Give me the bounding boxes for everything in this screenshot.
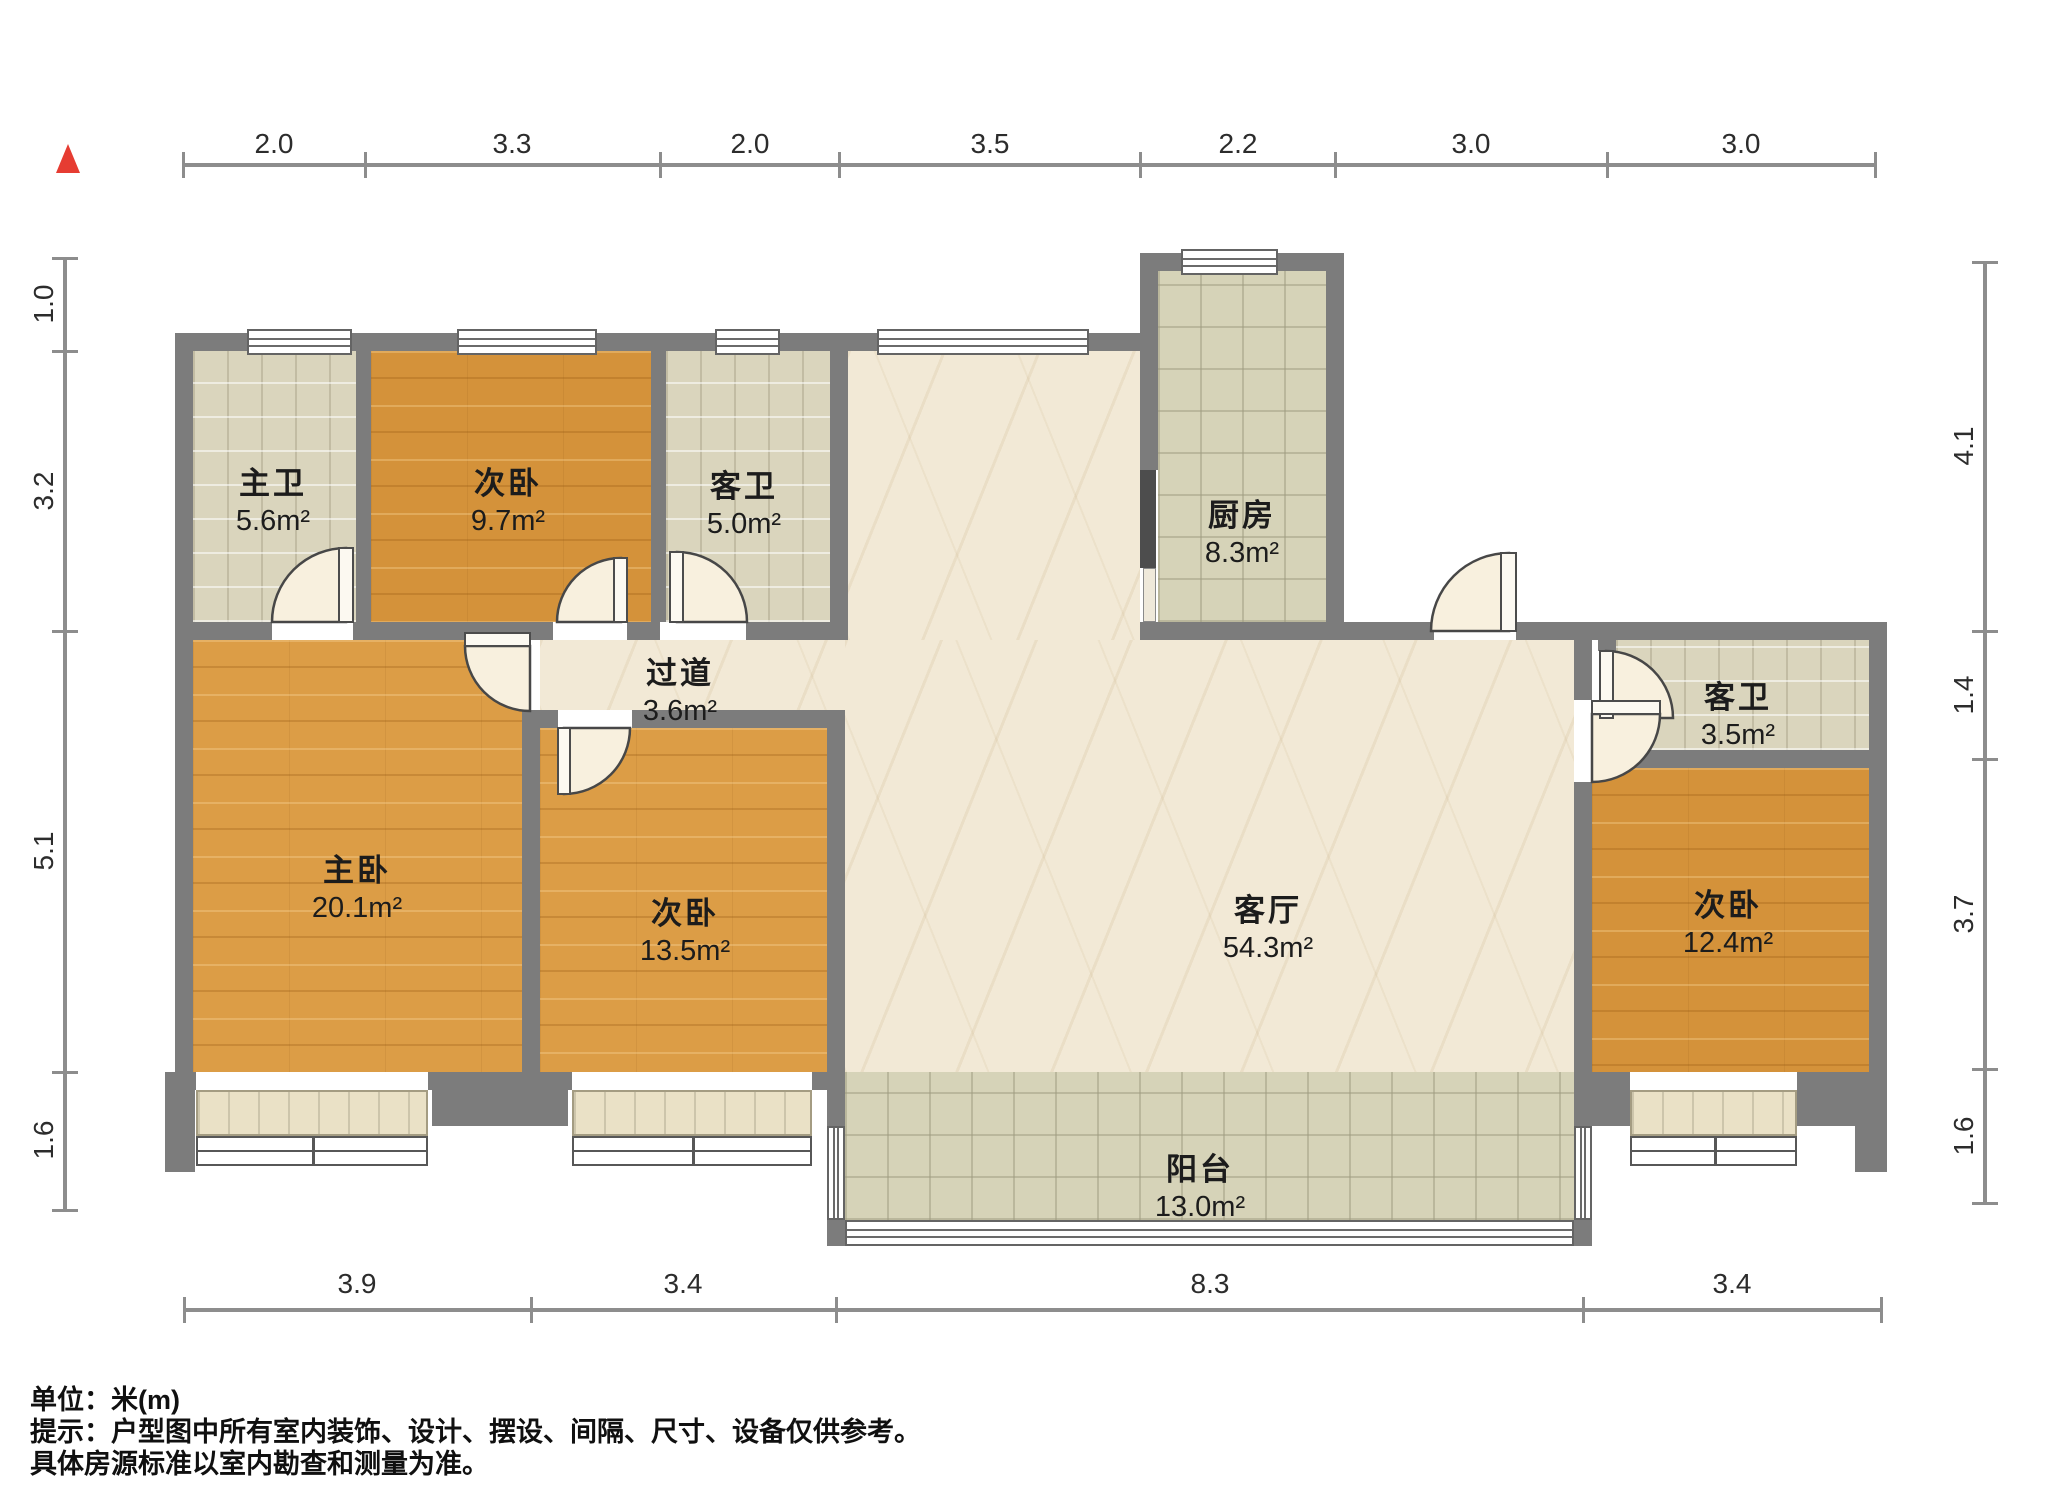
wall-master-right xyxy=(522,710,540,1081)
window-guest-bath-top xyxy=(715,329,780,355)
room-area: 12.4m² xyxy=(1683,927,1773,960)
room-label-master-bath: 主卫 5.6m² xyxy=(236,458,310,538)
footer-note-line1: 提示：户型图中所有室内装饰、设计、摆设、间隔、尺寸、设备仅供参考。 xyxy=(30,1416,921,1448)
dim-tick xyxy=(52,630,78,633)
dim-line-top xyxy=(183,163,1875,167)
wall-bathright-bottom xyxy=(1598,750,1887,768)
wall-left-outer xyxy=(175,333,193,1090)
wall-balcony-right-top xyxy=(1574,1090,1592,1128)
bay-sill-bedroom-mid xyxy=(572,1090,812,1136)
room-label-master-bedroom: 主卧 20.1m² xyxy=(312,845,402,925)
room-label-guest-bath-top: 客卫 5.0m² xyxy=(707,461,781,541)
room-label-bedroom-right: 次卧 12.4m² xyxy=(1683,880,1773,960)
dim-left-4: 1.6 xyxy=(28,1121,60,1160)
dim-line-bottom xyxy=(184,1308,1882,1312)
window-living-north xyxy=(877,329,1089,355)
wall-entry-right xyxy=(1516,622,1887,640)
dim-line-right xyxy=(1983,262,1987,1204)
dim-bottom-1: 3.9 xyxy=(338,1268,377,1300)
room-name: 厨房 xyxy=(1205,490,1279,535)
dim-line-left xyxy=(63,258,67,1211)
wall-master-right-stub xyxy=(522,622,540,640)
window-balcony-right xyxy=(1574,1126,1592,1220)
bay-window-master-bedroom xyxy=(196,1136,428,1166)
room-area: 9.7m² xyxy=(471,505,545,538)
room-name: 次卧 xyxy=(1683,880,1773,925)
dim-tick xyxy=(1334,152,1337,178)
wall-bedmid-right xyxy=(827,710,845,1090)
bay-window-bedroom-mid xyxy=(572,1136,812,1166)
dim-bottom-4: 3.4 xyxy=(1713,1268,1752,1300)
dim-left-3: 5.1 xyxy=(28,832,60,871)
room-area: 3.5m² xyxy=(1701,719,1775,752)
room-floor-living-north xyxy=(848,351,1140,640)
dim-top-6: 3.0 xyxy=(1452,128,1491,160)
wall-entry-left xyxy=(1326,622,1434,640)
dim-right-4: 1.6 xyxy=(1948,1117,1980,1156)
room-area: 13.0m² xyxy=(1155,1191,1245,1224)
dim-tick xyxy=(183,1297,186,1323)
wall-balcony-right-corner xyxy=(1574,1218,1592,1246)
window-kitchen xyxy=(1181,249,1278,275)
dim-right-1: 4.1 xyxy=(1948,427,1980,466)
room-name: 主卧 xyxy=(312,845,402,890)
wall-mid-4 xyxy=(746,622,848,640)
room-name: 次卧 xyxy=(640,888,730,933)
dim-top-1: 2.0 xyxy=(255,128,294,160)
kitchen-sliding-door xyxy=(1140,470,1156,568)
wall-right-flare xyxy=(1855,1072,1887,1172)
room-label-bedroom-mid: 次卧 13.5m² xyxy=(640,888,730,968)
room-label-corridor: 过道 3.6m² xyxy=(643,648,717,728)
dim-tick xyxy=(1582,1297,1585,1323)
room-name: 过道 xyxy=(643,648,717,693)
window-bedroom-top xyxy=(457,329,597,355)
dim-right-2: 1.4 xyxy=(1948,676,1980,715)
wall-kitchen-bottom xyxy=(1140,622,1344,640)
dim-tick xyxy=(838,152,841,178)
door-arc-entry xyxy=(1431,553,1509,631)
bay-window-bedroom-right xyxy=(1630,1136,1797,1166)
dim-tick xyxy=(1972,1068,1998,1071)
dim-tick xyxy=(1606,152,1609,178)
dim-tick xyxy=(52,350,78,353)
wall-bottom-stub-c xyxy=(1797,1090,1855,1126)
wall-bottom-3 xyxy=(812,1072,827,1090)
window-master-bath xyxy=(247,329,352,355)
dim-tick xyxy=(364,152,367,178)
room-label-balcony: 阳台 13.0m² xyxy=(1155,1144,1245,1224)
room-area: 3.6m² xyxy=(643,695,717,728)
bay-sill-bedroom-right xyxy=(1630,1090,1797,1136)
floor-plan-page: 主卫 5.6m² 次卧 9.7m² 客卫 5.0m² 厨房 8.3m² 过道 3… xyxy=(0,0,2048,1488)
wall-bottom-stub-a xyxy=(432,1090,568,1126)
dim-tick xyxy=(835,1297,838,1323)
north-arrow-icon xyxy=(56,144,80,173)
wall-bedright-left-bottom xyxy=(1574,782,1592,1090)
room-area: 5.6m² xyxy=(236,505,310,538)
dim-tick xyxy=(52,1209,78,1212)
dim-tick xyxy=(1972,630,1998,633)
wall-balcony-left-top xyxy=(827,1090,845,1128)
wall-bottom-right-1 xyxy=(1574,1072,1630,1090)
room-floor-living-main xyxy=(845,640,1574,1072)
wall-right-outer xyxy=(1869,622,1887,1090)
room-area: 54.3m² xyxy=(1223,932,1313,965)
wall-bed-bath-divider xyxy=(651,351,666,622)
door-leaf-entry xyxy=(1501,553,1516,631)
wall-bath-bed-divider xyxy=(356,351,371,622)
dim-tick xyxy=(1972,758,1998,761)
room-name: 主卫 xyxy=(236,458,310,503)
wall-mid-1 xyxy=(175,622,272,640)
room-name: 阳台 xyxy=(1155,1144,1245,1189)
dim-left-1: 1.0 xyxy=(28,285,60,324)
footer-note-line2: 具体房源标准以室内勘查和测量为准。 xyxy=(30,1448,489,1480)
wall-balcony-left-corner xyxy=(827,1218,845,1246)
dim-tick xyxy=(1972,261,1998,264)
dim-tick xyxy=(530,1297,533,1323)
dim-tick xyxy=(182,152,185,178)
wall-mid-3 xyxy=(627,622,660,640)
dim-right-3: 3.7 xyxy=(1948,895,1980,934)
dim-left-2: 3.2 xyxy=(28,472,60,511)
dim-tick xyxy=(52,257,78,260)
room-name: 客卫 xyxy=(707,461,781,506)
room-label-guest-bath-right: 客卫 3.5m² xyxy=(1701,672,1775,752)
room-label-living-room: 客厅 54.3m² xyxy=(1223,885,1313,965)
room-name: 次卧 xyxy=(471,458,545,503)
wall-bottom-2 xyxy=(428,1072,572,1090)
bay-sill-master-bedroom xyxy=(196,1090,428,1136)
wall-bath-living-divider xyxy=(830,351,848,622)
door-leaf-guest-bath-right xyxy=(1600,651,1613,718)
dim-tick xyxy=(1880,1297,1883,1323)
dim-bottom-2: 3.4 xyxy=(664,1268,703,1300)
room-name: 客厅 xyxy=(1223,885,1313,930)
window-balcony-left xyxy=(827,1126,845,1220)
room-label-bedroom-top: 次卧 9.7m² xyxy=(471,458,545,538)
kitchen-sliding-panel xyxy=(1143,568,1156,622)
dim-top-2: 3.3 xyxy=(493,128,532,160)
dim-top-5: 2.2 xyxy=(1219,128,1258,160)
footer-unit-label: 单位：米(m) xyxy=(30,1384,180,1416)
room-label-kitchen: 厨房 8.3m² xyxy=(1205,490,1279,570)
dim-tick xyxy=(1139,152,1142,178)
dim-top-3: 2.0 xyxy=(731,128,770,160)
room-area: 5.0m² xyxy=(707,508,781,541)
room-name: 客卫 xyxy=(1701,672,1775,717)
dim-tick xyxy=(52,1071,78,1074)
dim-tick xyxy=(1874,152,1877,178)
dim-top-7: 3.0 xyxy=(1722,128,1761,160)
dim-tick xyxy=(659,152,662,178)
wall-kitchen-right xyxy=(1326,253,1344,640)
room-area: 8.3m² xyxy=(1205,537,1279,570)
wall-bottom-stub-b xyxy=(1592,1090,1630,1126)
dim-bottom-3: 8.3 xyxy=(1191,1268,1230,1300)
room-area: 20.1m² xyxy=(312,892,402,925)
dim-top-4: 3.5 xyxy=(971,128,1010,160)
wall-bathright-left-a xyxy=(1598,640,1616,651)
wall-left-flare xyxy=(165,1072,195,1172)
wall-kitchen-left xyxy=(1140,253,1158,470)
wall-bedright-left-top xyxy=(1574,640,1592,700)
room-area: 13.5m² xyxy=(640,935,730,968)
wall-corridor-bottom-1 xyxy=(540,710,558,728)
dim-tick xyxy=(1972,1202,1998,1205)
